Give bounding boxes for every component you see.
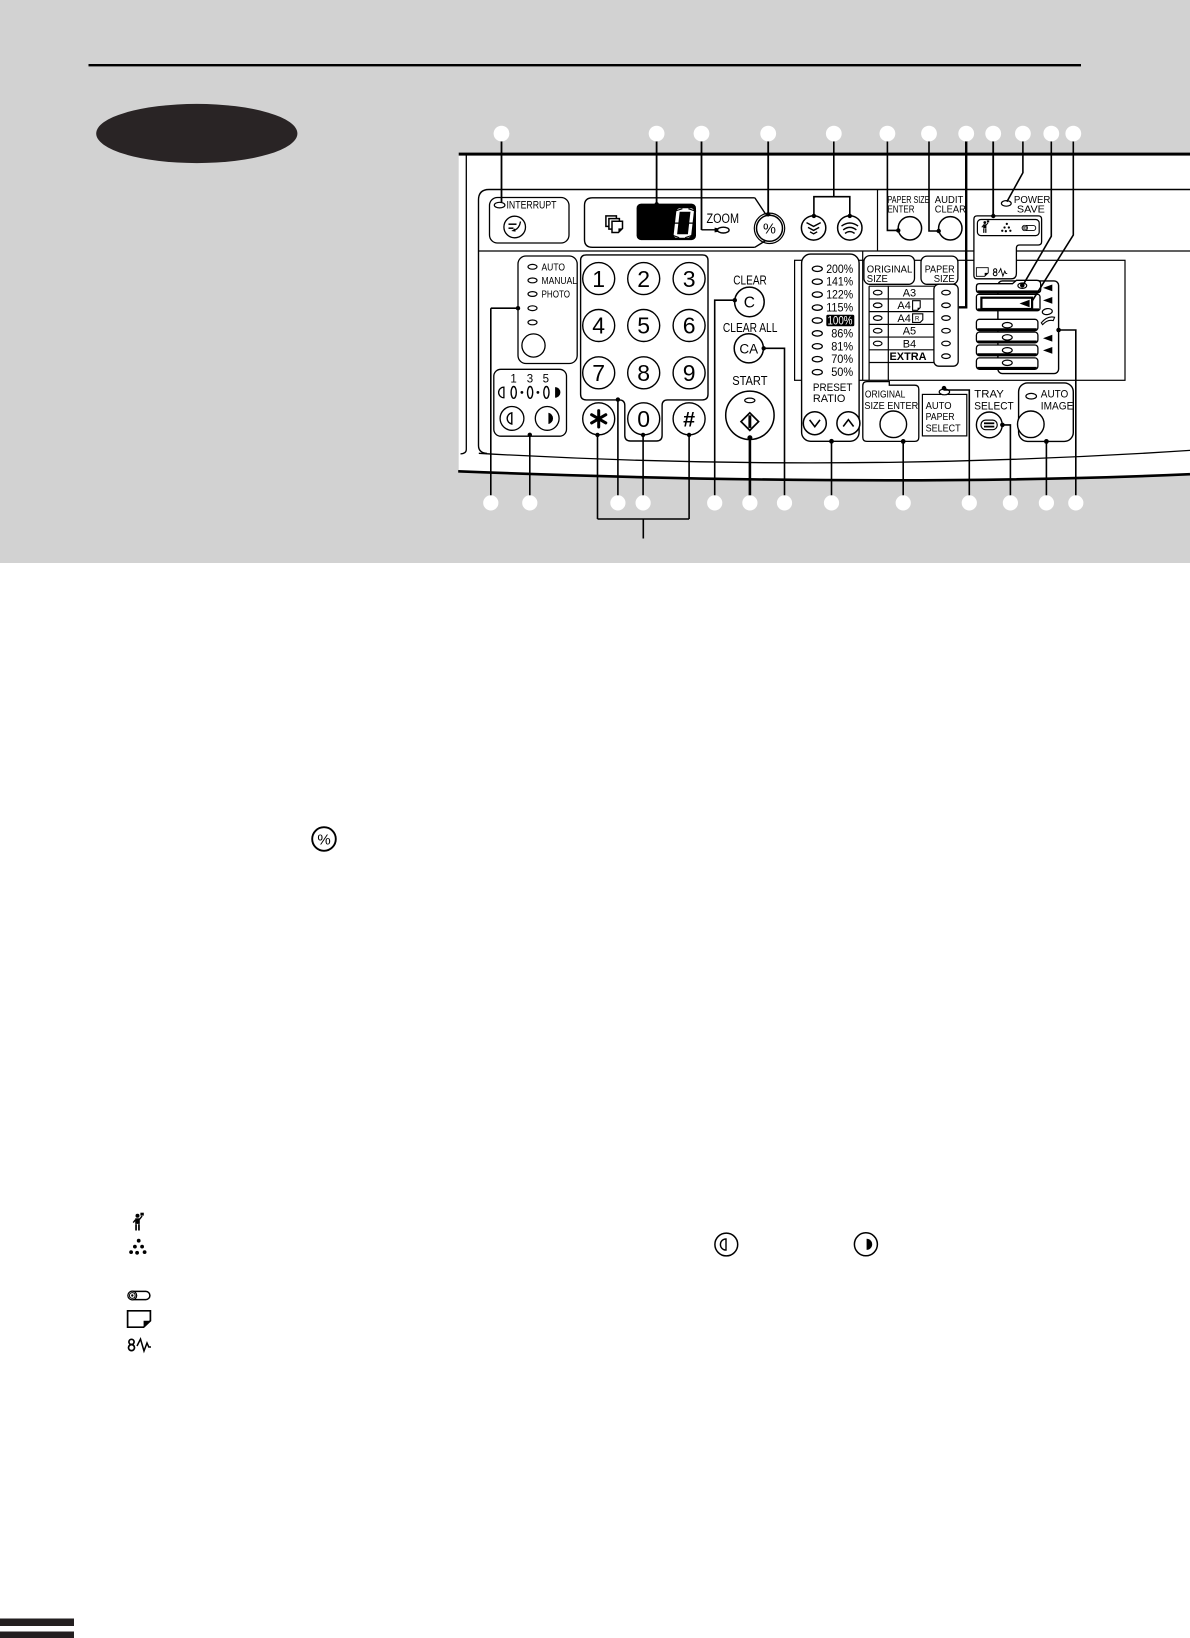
svg-text:%: % — [763, 221, 776, 237]
svg-text:2: 2 — [637, 266, 650, 292]
svg-text:AUTO: AUTO — [542, 262, 566, 273]
svg-text:IMAGE: IMAGE — [1041, 401, 1074, 413]
svg-text:A5: A5 — [903, 326, 916, 338]
svg-text:1: 1 — [510, 373, 516, 385]
svg-text:86%: 86% — [831, 326, 853, 340]
svg-text:CLEAR ALL: CLEAR ALL — [723, 320, 778, 335]
svg-text:7: 7 — [592, 360, 605, 386]
svg-text:SAVE: SAVE — [1017, 205, 1046, 216]
svg-text:#: # — [683, 408, 695, 432]
svg-text:A3: A3 — [903, 287, 916, 299]
svg-text:200%: 200% — [826, 262, 853, 276]
svg-text:ORIGINAL: ORIGINAL — [865, 389, 906, 400]
svg-text:115%: 115% — [826, 301, 853, 315]
svg-text:5: 5 — [543, 373, 549, 385]
svg-text:5: 5 — [637, 313, 650, 339]
svg-text:CLEAR: CLEAR — [733, 273, 767, 288]
svg-text:6: 6 — [683, 313, 696, 339]
svg-text:AUTO: AUTO — [926, 401, 952, 412]
svg-text:PHOTO: PHOTO — [542, 290, 571, 301]
svg-text:141%: 141% — [826, 275, 853, 289]
svg-text:0: 0 — [637, 406, 650, 432]
svg-text:CA: CA — [739, 341, 758, 356]
svg-text:C: C — [744, 295, 755, 312]
svg-text:SIZE ENTER: SIZE ENTER — [864, 401, 918, 412]
svg-text:50%: 50% — [831, 365, 853, 379]
svg-text:EXTRA: EXTRA — [890, 351, 927, 363]
svg-text:ZOOM: ZOOM — [707, 211, 740, 227]
svg-text:R: R — [915, 317, 920, 323]
svg-text:122%: 122% — [826, 288, 853, 302]
svg-text:INTERRUPT: INTERRUPT — [507, 200, 557, 212]
svg-text:100%: 100% — [828, 314, 853, 328]
svg-text:TRAY: TRAY — [974, 389, 1004, 401]
svg-text:AUTO: AUTO — [1041, 389, 1069, 401]
svg-text:START: START — [732, 373, 767, 388]
svg-text:3: 3 — [683, 266, 696, 292]
svg-text:9: 9 — [683, 360, 696, 386]
svg-text:70%: 70% — [831, 352, 853, 366]
svg-text:81%: 81% — [831, 339, 853, 353]
svg-text:SIZE: SIZE — [867, 274, 888, 285]
svg-text:%: % — [317, 832, 330, 849]
svg-text:CLEAR: CLEAR — [935, 205, 966, 216]
svg-text:SELECT: SELECT — [926, 424, 961, 435]
svg-text:8: 8 — [637, 360, 650, 386]
svg-text:A4: A4 — [897, 300, 910, 312]
svg-text:SIZE: SIZE — [934, 274, 955, 285]
svg-text:SELECT: SELECT — [974, 401, 1014, 413]
svg-text:MANUAL: MANUAL — [542, 276, 578, 287]
svg-text:B4: B4 — [903, 338, 916, 350]
svg-text:RATIO: RATIO — [813, 393, 846, 405]
svg-text:1: 1 — [592, 266, 605, 292]
svg-text:A4: A4 — [897, 313, 910, 325]
svg-text:PAPER: PAPER — [926, 412, 955, 423]
svg-text:4: 4 — [592, 313, 605, 339]
svg-text:3: 3 — [527, 373, 533, 385]
svg-text:ENTER: ENTER — [888, 205, 915, 216]
